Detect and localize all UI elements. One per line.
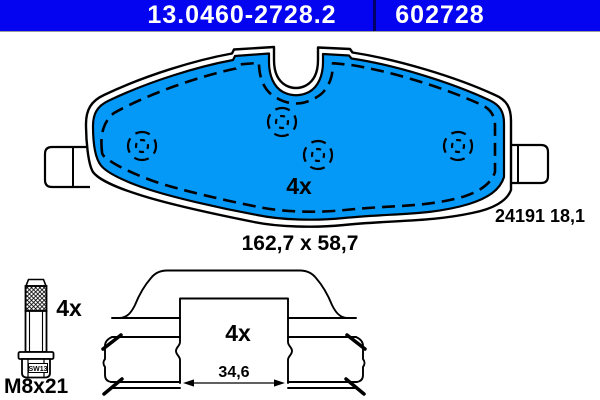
abutment-tab-left [45, 147, 90, 187]
bolt-flange [19, 352, 54, 359]
pad-wva-thickness-label: 24191 18,1 [495, 206, 585, 226]
pad-quantity-label: 4x [286, 173, 312, 199]
clip-bottom-right [288, 382, 357, 388]
abutment-tab-right [510, 145, 548, 183]
bolt-thread-label: M8x21 [4, 375, 69, 398]
technical-drawing: 4x 24191 18,1 162,7 x 58,7 SW13 4x M8x21 [0, 0, 600, 400]
bolt-wrench-size-label: SW13 [28, 366, 47, 373]
brake-pad-drawing: 4x 24191 18,1 162,7 x 58,7 [45, 47, 585, 255]
clip-quantity-label: 4x [225, 320, 251, 346]
clip-width-dimension-label: 34,6 [218, 364, 249, 381]
clip-bottom-left [111, 382, 180, 388]
clip-drawing: 4x 34,6 [103, 271, 365, 395]
bolt-tip [26, 280, 46, 287]
dimension-arrow-right [274, 379, 285, 386]
bolt-drawing: SW13 4x M8x21 [4, 280, 82, 399]
bolt-thread-knurl [26, 286, 47, 311]
dimension-arrow-left [183, 379, 194, 386]
bolt-quantity-label: 4x [56, 295, 82, 321]
product-drawing-sheet: 13.0460-2728.2 602728 [0, 0, 600, 400]
bolt-shaft [26, 311, 47, 352]
pad-dimensions-label: 162,7 x 58,7 [242, 232, 359, 255]
clip-hump [119, 271, 348, 319]
